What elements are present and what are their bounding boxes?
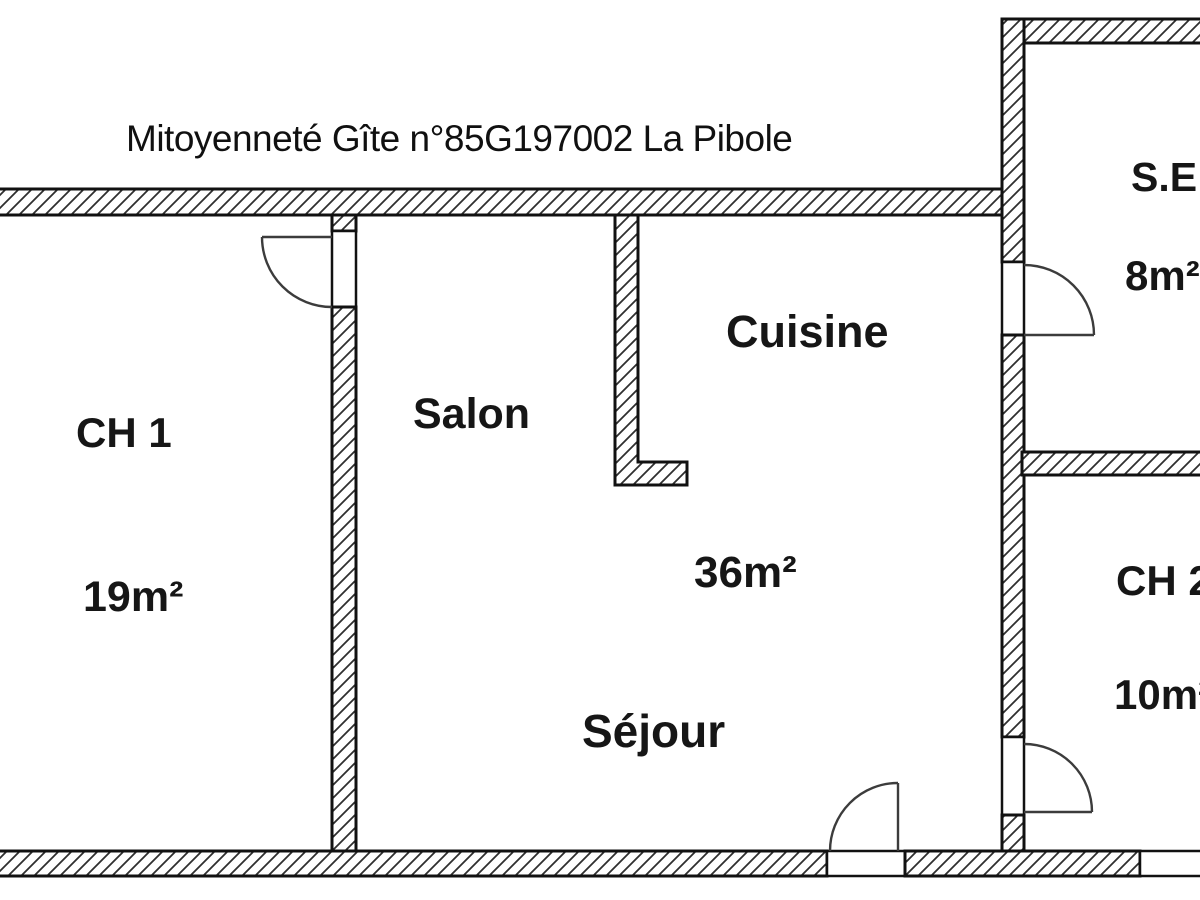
door-arc-se bbox=[1024, 265, 1094, 335]
wall-bottom-left-segment bbox=[0, 851, 827, 876]
room-label-cuisine: Cuisine bbox=[726, 309, 889, 354]
wall-top-main bbox=[0, 189, 1004, 215]
plan-title: Mitoyenneté Gîte n°85G197002 La Pibole bbox=[126, 118, 792, 160]
room-area-sejour: 36m² bbox=[694, 551, 797, 595]
door-ch2 bbox=[1024, 744, 1092, 812]
wall-cuisine-l bbox=[615, 215, 687, 485]
room-label-se: S.E bbox=[1131, 157, 1197, 198]
door-arc-sejour bbox=[830, 783, 898, 851]
wall-right-middle-segment bbox=[1002, 335, 1024, 737]
door-opening-sejour bbox=[827, 851, 905, 876]
door-ch1 bbox=[262, 237, 332, 307]
room-area-se: 8m² bbox=[1125, 255, 1200, 297]
room-label-ch2: CH 2 bbox=[1116, 560, 1200, 602]
wall-right-upper-segment bbox=[1002, 19, 1024, 262]
wall-ch1-salon-stub bbox=[332, 215, 356, 231]
wall-top-se-room bbox=[1002, 19, 1200, 43]
room-label-ch1: CH 1 bbox=[76, 412, 172, 454]
door-sejour bbox=[830, 783, 898, 851]
door-arc-ch2 bbox=[1024, 744, 1092, 812]
room-area-ch2: 10m² bbox=[1114, 674, 1200, 716]
room-area-ch1: 19m² bbox=[83, 576, 183, 619]
wall-ch1-salon bbox=[332, 307, 356, 851]
room-label-sejour: Séjour bbox=[582, 708, 725, 754]
door-arc-ch1 bbox=[262, 237, 332, 307]
room-label-salon: Salon bbox=[413, 393, 530, 436]
door-se bbox=[1024, 265, 1094, 335]
wall-divider-se-ch2 bbox=[1022, 452, 1200, 475]
door-opening-bottom-right bbox=[1140, 851, 1200, 876]
wall-bottom-middle-segment bbox=[905, 851, 1140, 876]
door-opening-ch1 bbox=[332, 231, 356, 307]
door-opening-ch2 bbox=[1002, 737, 1024, 815]
floor-plan: Mitoyenneté Gîte n°85G197002 La Pibole C… bbox=[0, 0, 1200, 900]
door-opening-se bbox=[1002, 262, 1024, 335]
